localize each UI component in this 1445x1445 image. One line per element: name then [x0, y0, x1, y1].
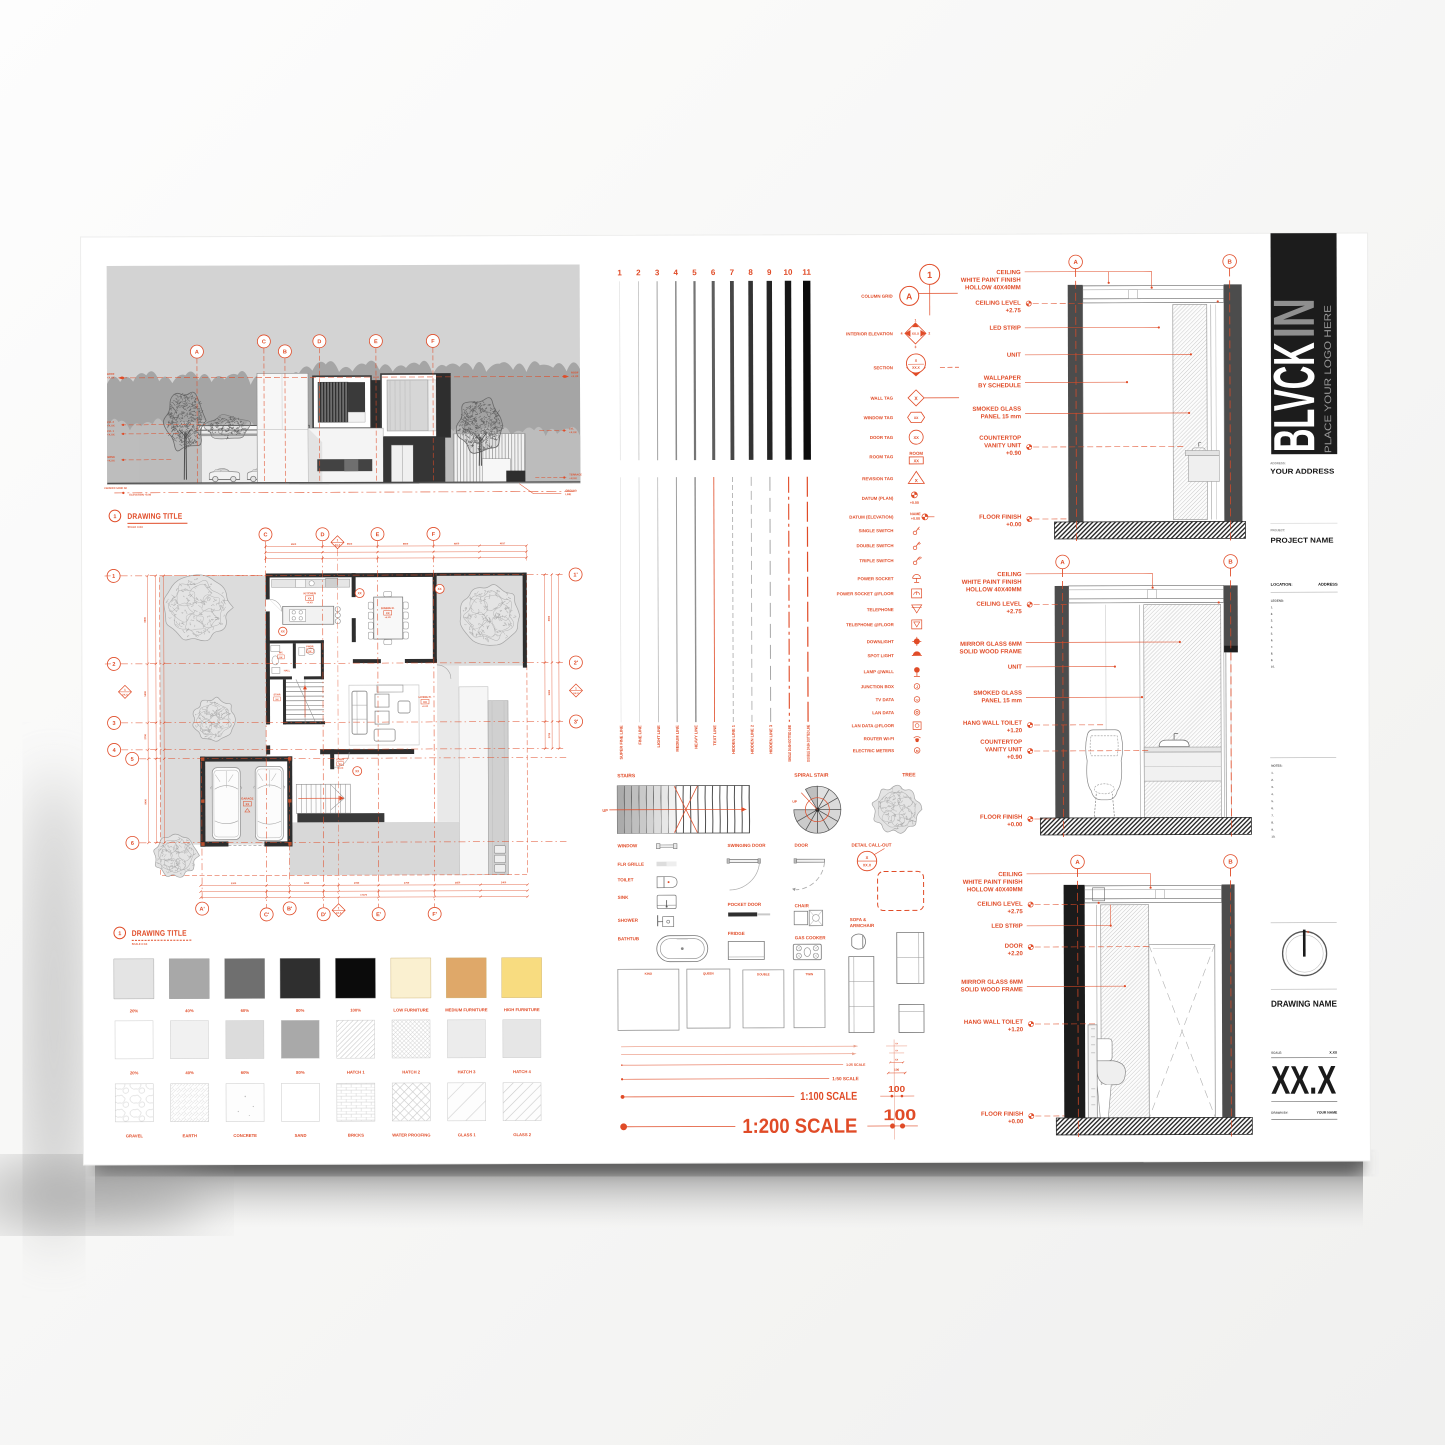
svg-text:4: 4	[901, 332, 903, 336]
svg-text:EARTH: EARTH	[183, 1133, 197, 1138]
svg-text:8: 8	[748, 268, 753, 277]
svg-text:DRAWING NAME: DRAWING NAME	[1271, 999, 1337, 1009]
svg-text:GAS COOKER: GAS COOKER	[795, 935, 827, 940]
svg-text:1: 1	[118, 931, 121, 937]
svg-text:3': 3'	[574, 719, 579, 725]
svg-text:1: 1	[914, 318, 916, 322]
svg-text:VANITY UNIT: VANITY UNIT	[984, 443, 1021, 449]
svg-text:LVL 2: LVL 2	[107, 420, 114, 424]
svg-text:ROOF: ROOF	[107, 372, 115, 376]
svg-text:GLASS 2: GLASS 2	[513, 1132, 532, 1137]
svg-text:2: 2	[928, 332, 930, 336]
svg-text:1250: 1250	[304, 882, 310, 885]
svg-text:REVISION TAG: REVISION TAG	[862, 476, 894, 481]
svg-text:3: 3	[113, 721, 116, 727]
svg-text:1:50 SCALE: 1:50 SCALE	[832, 1076, 859, 1081]
svg-text:BY SCHEDULE: BY SCHEDULE	[978, 383, 1021, 389]
svg-text:XX.X: XX.X	[863, 863, 872, 867]
svg-text:100: 100	[894, 1068, 899, 1072]
svg-text:+1.20: +1.20	[1007, 728, 1023, 734]
svg-text:PWDR: PWDR	[306, 645, 314, 648]
svg-text:XX.X: XX.X	[912, 366, 920, 370]
svg-text:DRAWING TITLE: DRAWING TITLE	[127, 512, 182, 521]
svg-text:C: C	[262, 339, 266, 345]
svg-text:YOUR ADDRESS: YOUR ADDRESS	[1270, 467, 1334, 476]
svg-text:WC: WC	[279, 651, 283, 654]
svg-text:CEILING LEVEL: CEILING LEVEL	[975, 301, 1021, 307]
svg-text:6.: 6.	[1271, 638, 1274, 642]
svg-text:SINK: SINK	[618, 895, 630, 900]
svg-text:D: D	[320, 532, 324, 538]
svg-text:SCALE X:XX: SCALE X:XX	[132, 942, 148, 946]
svg-text:20%: 20%	[130, 1070, 139, 1075]
svg-text:HIDDEN LINE 2: HIDDEN LINE 2	[749, 724, 754, 754]
svg-text:VANITY UNIT: VANITY UNIT	[985, 747, 1022, 753]
svg-text:+2.75: +2.75	[1007, 609, 1023, 615]
svg-text:PROJECT NAME: PROJECT NAME	[1270, 536, 1333, 545]
svg-text:SCALE:: SCALE:	[1271, 1051, 1282, 1055]
svg-text:DOOR: DOOR	[794, 843, 808, 848]
svg-text:11: 11	[802, 268, 811, 277]
svg-text:10.: 10.	[1271, 665, 1275, 669]
svg-text:D': D'	[321, 912, 327, 918]
svg-text:HATCH 3: HATCH 3	[458, 1069, 477, 1074]
svg-text:A: A	[1060, 560, 1065, 566]
svg-text:LEGEND:: LEGEND:	[1271, 599, 1285, 603]
svg-text:100: 100	[883, 1107, 916, 1124]
svg-text:6: 6	[131, 841, 134, 847]
svg-text:+X.XX: +X.XX	[569, 476, 577, 480]
svg-text:SCALE X:XX: SCALE X:XX	[127, 525, 143, 529]
svg-text:DOUBLE: DOUBLE	[757, 972, 770, 976]
svg-text:7.: 7.	[1271, 645, 1274, 649]
svg-text:CHAIR: CHAIR	[795, 903, 810, 908]
svg-text:SOLID WOOD FRAME: SOLID WOOD FRAME	[961, 987, 1023, 993]
svg-text:+X.XX: +X.XX	[107, 376, 115, 380]
svg-text:1: 1	[112, 574, 115, 580]
svg-text:+X.XX: +X.XX	[307, 602, 314, 604]
svg-text:BLVCK: BLVCK	[1262, 342, 1327, 452]
svg-text:CEILING: CEILING	[997, 572, 1022, 578]
svg-text:DATUM (PLAN): DATUM (PLAN)	[862, 496, 894, 501]
svg-text:NAME: NAME	[910, 512, 921, 516]
svg-text:8800: 8800	[548, 615, 551, 621]
svg-text:DOUBLE DASH DOTTED LINE: DOUBLE DASH DOTTED LINE	[806, 725, 811, 762]
svg-text:+0.00: +0.00	[910, 501, 919, 505]
svg-text:UNIT: UNIT	[1008, 665, 1022, 671]
svg-text:LIVING R.: LIVING R.	[419, 695, 432, 699]
svg-text:6: 6	[711, 268, 716, 277]
svg-text:XX: XX	[355, 769, 359, 773]
svg-text:9.: 9.	[1271, 828, 1274, 832]
svg-text:COLUMN GRID: COLUMN GRID	[861, 294, 892, 299]
svg-text:D: D	[317, 339, 321, 345]
svg-text:1.: 1.	[1271, 605, 1274, 609]
svg-text:PANEL 15 mm: PANEL 15 mm	[981, 414, 1021, 420]
svg-text:2.: 2.	[1271, 612, 1274, 616]
svg-text:ROOF: ROOF	[571, 370, 579, 374]
svg-text:B: B	[1227, 260, 1232, 266]
svg-text:+2.75: +2.75	[1007, 909, 1023, 915]
svg-text:3.: 3.	[1271, 785, 1274, 789]
svg-text:HOLLOW 40X40MM: HOLLOW 40X40MM	[965, 285, 1021, 291]
svg-text:BRICKS: BRICKS	[348, 1133, 364, 1138]
svg-text:DOOR: DOOR	[1005, 944, 1024, 950]
svg-text:FLOOR FINISH: FLOOR FINISH	[979, 515, 1021, 521]
svg-text:4: 4	[674, 268, 679, 277]
svg-text:UP: UP	[792, 800, 797, 804]
svg-text:2: 2	[112, 662, 115, 668]
svg-text:40%: 40%	[185, 1008, 194, 1013]
svg-text:XX: XX	[308, 650, 312, 653]
svg-text:KING: KING	[645, 972, 653, 976]
svg-text:XX: XX	[913, 435, 919, 440]
svg-text:HEAVY LINE: HEAVY LINE	[693, 725, 698, 749]
svg-text:ELECTRIC METERS: ELECTRIC METERS	[853, 748, 895, 753]
svg-text:POCKET DOOR: POCKET DOOR	[728, 902, 762, 907]
svg-text:5: 5	[692, 268, 697, 277]
svg-text:QUEEN: QUEEN	[703, 972, 714, 976]
svg-text:WALLPAPER: WALLPAPER	[984, 376, 1022, 382]
svg-text:10: 10	[783, 268, 792, 277]
svg-text:5500: 5500	[347, 543, 353, 546]
svg-text:LOW FURNITURE: LOW FURNITURE	[393, 1007, 428, 1012]
svg-text:E: E	[374, 339, 378, 345]
svg-text:B: B	[1228, 560, 1233, 566]
svg-text:SOLID WOOD FRAME: SOLID WOOD FRAME	[959, 649, 1021, 655]
svg-text:1.: 1.	[1271, 771, 1274, 775]
svg-text:A: A	[1075, 860, 1080, 866]
svg-text:E': E'	[376, 912, 382, 918]
svg-text:HOLLOW 40X40MM: HOLLOW 40X40MM	[967, 887, 1023, 893]
svg-text:TV DATA: TV DATA	[876, 697, 895, 702]
svg-text:8.: 8.	[1271, 820, 1274, 824]
svg-text:LAN DATA: LAN DATA	[872, 710, 895, 715]
svg-text:SOFA &: SOFA &	[850, 917, 867, 922]
svg-text:STAIRS: STAIRS	[617, 773, 636, 779]
svg-text:GLASS 1: GLASS 1	[458, 1132, 477, 1137]
svg-text:WALL TAG: WALL TAG	[871, 396, 894, 401]
svg-text:+0.00: +0.00	[1008, 1119, 1024, 1125]
svg-text:MIRROR GLASS 6MM: MIRROR GLASS 6MM	[961, 980, 1023, 986]
svg-text:INTERIOR ELEVATION: INTERIOR ELEVATION	[846, 331, 893, 336]
svg-text:LAN DATA @FLOOR: LAN DATA @FLOOR	[852, 723, 895, 728]
svg-text:FINE LINE: FINE LINE	[637, 725, 642, 745]
svg-text:9.: 9.	[1271, 658, 1274, 662]
svg-text:3: 3	[655, 268, 660, 277]
svg-text:+0.00: +0.00	[1007, 822, 1023, 828]
svg-text:+0.90: +0.90	[1007, 755, 1023, 761]
svg-text:40%: 40%	[185, 1070, 194, 1075]
svg-text:+0.00: +0.00	[911, 517, 920, 521]
svg-text:LED STRIP: LED STRIP	[989, 326, 1020, 332]
svg-text:JUNCTION BOX: JUNCTION BOX	[861, 684, 894, 689]
svg-text:LVL 1: LVL 1	[107, 429, 114, 433]
svg-text:2650: 2650	[455, 881, 461, 884]
svg-text:A: A	[1073, 260, 1078, 266]
svg-text:+X.XX: +X.XX	[385, 617, 392, 619]
svg-text:WINDOW TAG: WINDOW TAG	[864, 415, 894, 420]
svg-text:TREE: TREE	[902, 772, 916, 778]
svg-text:HATCH 2: HATCH 2	[402, 1069, 421, 1074]
svg-text:+X.XX: +X.XX	[422, 706, 429, 708]
svg-text:8800: 8800	[144, 616, 147, 622]
svg-text:8.: 8.	[1271, 651, 1274, 655]
svg-text:2': 2'	[574, 660, 579, 666]
svg-text:80%: 80%	[296, 1008, 305, 1013]
svg-text:CEILING LEVEL: CEILING LEVEL	[977, 902, 1023, 908]
svg-text:+2.20: +2.20	[1008, 951, 1024, 957]
svg-text:XX.X: XX.X	[1271, 1059, 1336, 1103]
svg-text:TWIN: TWIN	[806, 972, 814, 976]
svg-text:3300: 3300	[231, 882, 237, 885]
svg-text:SPOT LIGHT: SPOT LIGHT	[867, 653, 894, 658]
svg-text:XX: XX	[245, 802, 249, 806]
svg-text:1:100 SCALE: 1:100 SCALE	[800, 1091, 857, 1103]
svg-text:DOOR TAG: DOOR TAG	[870, 435, 894, 440]
svg-text:B: B	[1228, 860, 1233, 866]
svg-text:CEILING: CEILING	[996, 270, 1021, 276]
svg-text:5.: 5.	[1271, 799, 1274, 803]
svg-text:WHITE PAINT FINISH: WHITE PAINT FINISH	[961, 278, 1021, 284]
svg-text:A: A	[195, 350, 199, 356]
svg-text:LVL: LVL	[569, 426, 574, 430]
svg-text:SINGLE SWITCH: SINGLE SWITCH	[859, 528, 894, 533]
svg-text:+X.XX: +X.XX	[107, 424, 115, 428]
svg-text:2700: 2700	[144, 733, 147, 739]
svg-text:XX: XX	[914, 458, 920, 463]
svg-text:UP: UP	[602, 808, 608, 813]
svg-text:80%: 80%	[296, 1070, 305, 1075]
svg-text:+X.XX: +X.XX	[569, 430, 577, 434]
svg-text:+2.75: +2.75	[1006, 308, 1022, 314]
svg-text:17375: 17375	[360, 894, 367, 897]
svg-text:1': 1'	[573, 572, 578, 578]
svg-text:DATUM (ELEVATION): DATUM (ELEVATION)	[849, 514, 894, 519]
svg-text:PLACE YOUR LOGO HERE: PLACE YOUR LOGO HERE	[1323, 305, 1334, 453]
svg-text:LOCATION:: LOCATION:	[1271, 582, 1293, 587]
svg-text:FLOOR FINISH: FLOOR FINISH	[980, 815, 1022, 821]
svg-text:LED STRIP: LED STRIP	[991, 924, 1022, 930]
svg-text:XX: XX	[386, 611, 390, 615]
svg-text:LOBBY: LOBBY	[336, 758, 345, 761]
svg-text:2: 2	[636, 268, 641, 277]
svg-text:E: E	[376, 532, 380, 538]
svg-text:HALL: HALL	[284, 669, 291, 672]
svg-text:ADDRESS: ADDRESS	[1318, 582, 1338, 587]
svg-text:5: 5	[131, 757, 134, 763]
svg-text:MEDIUM LINE: MEDIUM LINE	[675, 725, 680, 752]
svg-text:UNIT: UNIT	[1007, 353, 1021, 359]
svg-text:X: X	[866, 855, 869, 860]
svg-text:XX: XX	[914, 416, 919, 420]
svg-text:+X.XX: +X.XX	[107, 459, 115, 463]
svg-text:6.: 6.	[1271, 806, 1274, 810]
svg-text:GRAVEL: GRAVEL	[126, 1133, 144, 1138]
svg-text:+0.90: +0.90	[1006, 451, 1022, 457]
svg-text:WINDOW: WINDOW	[617, 843, 638, 848]
svg-text:GROUND: GROUND	[565, 488, 577, 492]
svg-text:WHITE PAINT FINISH: WHITE PAINT FINISH	[963, 880, 1023, 886]
svg-text:TOILET: TOILET	[618, 877, 634, 882]
svg-text:COUNTERTOP: COUNTERTOP	[979, 436, 1021, 442]
svg-text:J: J	[916, 685, 918, 689]
svg-text:IN: IN	[1262, 298, 1327, 338]
svg-text:COUNTERTOP: COUNTERTOP	[980, 740, 1022, 746]
svg-text:PROJECT:: PROJECT:	[1270, 528, 1285, 532]
svg-text:XX: XX	[308, 596, 312, 600]
svg-text:ROUTER WI-FI: ROUTER WI-FI	[864, 736, 895, 741]
svg-text:MEDIUM FURNITURE: MEDIUM FURNITURE	[445, 1007, 488, 1012]
svg-text:ROOM: ROOM	[909, 451, 923, 456]
svg-text:CONCRETE: CONCRETE	[233, 1133, 257, 1138]
svg-text:2700: 2700	[548, 732, 551, 738]
svg-text:4637: 4637	[500, 542, 506, 545]
svg-text:HIGH FURNITURE: HIGH FURNITURE	[504, 1007, 540, 1012]
svg-text:9: 9	[767, 268, 772, 277]
svg-text:POWER SOCKET: POWER SOCKET	[858, 576, 894, 581]
svg-text:100%: 100%	[350, 1008, 361, 1013]
svg-text:CEILING: CEILING	[998, 872, 1023, 878]
svg-text:SMOKED GLASS: SMOKED GLASS	[972, 407, 1021, 413]
svg-text:WATER PROOFING: WATER PROOFING	[392, 1132, 430, 1137]
svg-text:XX: XX	[275, 698, 279, 701]
svg-text:+0.00: +0.00	[1006, 522, 1022, 528]
svg-text:F': F'	[432, 912, 437, 918]
svg-text:POWER SOCKET @FLOOR: POWER SOCKET @FLOOR	[837, 591, 895, 596]
svg-text:7: 7	[730, 268, 735, 277]
svg-text:X.XX: X.XX	[1329, 1051, 1337, 1055]
svg-text:60%: 60%	[241, 1008, 250, 1013]
svg-text:SWINGING DOOR: SWINGING DOOR	[727, 843, 766, 848]
svg-text:SMOKED GLASS: SMOKED GLASS	[973, 691, 1022, 697]
svg-text:SUPER FINE LINE: SUPER FINE LINE	[619, 725, 624, 760]
svg-text:M: M	[916, 749, 919, 753]
svg-text:DRAWING TITLE: DRAWING TITLE	[132, 929, 187, 938]
svg-text:YOUR NAME: YOUR NAME	[1317, 1111, 1338, 1115]
svg-text:HATCH 4: HATCH 4	[513, 1069, 532, 1074]
svg-text:DETAIL CALL-OUT: DETAIL CALL-OUT	[851, 842, 891, 847]
svg-text:XX.X: XX.X	[573, 692, 579, 695]
svg-text:TERRACE: TERRACE	[569, 472, 582, 476]
svg-text:ROOM TAG: ROOM TAG	[869, 454, 893, 459]
svg-text:SECTION: SECTION	[873, 365, 893, 370]
svg-text:PANEL 15 mm: PANEL 15 mm	[982, 698, 1022, 704]
svg-text:XX: XX	[423, 700, 427, 704]
svg-text:HOLLOW 40X40MM: HOLLOW 40X40MM	[966, 587, 1022, 593]
svg-text:2400: 2400	[501, 881, 507, 884]
svg-text:ARMCHAIR: ARMCHAIR	[850, 923, 875, 928]
svg-text:XX: XX	[279, 656, 283, 659]
svg-text:3500: 3500	[291, 543, 297, 546]
svg-text:HIDDEN LINE 1: HIDDEN LINE 1	[731, 724, 736, 754]
svg-text:FRIDGE: FRIDGE	[728, 931, 745, 936]
svg-text:TV: TV	[915, 698, 919, 702]
svg-text:DINING R.: DINING R.	[381, 606, 395, 610]
svg-text:FLOOR FINISH: FLOOR FINISH	[981, 1112, 1023, 1118]
svg-text:DOUBLE SWITCH: DOUBLE SWITCH	[856, 543, 893, 548]
svg-text:LIGHT LINE: LIGHT LINE	[656, 725, 661, 748]
svg-text:4600: 4600	[454, 542, 460, 545]
svg-text:TEXT LINE: TEXT LINE	[712, 725, 717, 746]
svg-text:1:200 SCALE: 1:200 SCALE	[742, 1115, 857, 1138]
svg-text:MIRROR GLASS 6MM: MIRROR GLASS 6MM	[960, 642, 1022, 648]
svg-text:DRAWN BY:: DRAWN BY:	[1271, 1111, 1288, 1115]
svg-text:XX.X: XX.X	[336, 912, 342, 915]
svg-text:NOTES:: NOTES:	[1271, 764, 1282, 768]
svg-text:5900: 5900	[144, 690, 147, 696]
svg-text:FLR GRILLE: FLR GRILLE	[618, 862, 645, 867]
svg-text:60%: 60%	[241, 1070, 250, 1075]
svg-text:HANG WALL TOILET: HANG WALL TOILET	[964, 1020, 1023, 1026]
svg-text:HANG WALL TOILET: HANG WALL TOILET	[963, 721, 1022, 727]
svg-text:100: 100	[888, 1084, 905, 1094]
svg-text:C': C'	[264, 912, 270, 918]
svg-text:SINGLE DASH-DOTTED LINE: SINGLE DASH-DOTTED LINE	[787, 725, 792, 762]
svg-text:2.: 2.	[1271, 778, 1274, 782]
svg-text:XX.X: XX.X	[912, 332, 920, 336]
svg-text:CEILING LEVEL: CEILING LEVEL	[976, 602, 1022, 608]
svg-text:TELEPHONE: TELEPHONE	[867, 607, 894, 612]
svg-text:LINE: LINE	[565, 492, 571, 496]
svg-text:+1.20: +1.20	[1008, 1027, 1024, 1033]
svg-text:ELEVATION +0.00: ELEVATION +0.00	[129, 493, 151, 497]
svg-text:1: 1	[113, 514, 116, 520]
svg-text:GARAGE: GARAGE	[241, 796, 253, 800]
svg-text:XX: XX	[438, 587, 442, 591]
svg-text:1: 1	[927, 270, 932, 280]
svg-text:TELEPHONE @FLOOR: TELEPHONE @FLOOR	[846, 622, 895, 627]
svg-text:10.: 10.	[1271, 835, 1275, 839]
svg-text:HIDDEN LINE 3: HIDDEN LINE 3	[768, 724, 773, 754]
svg-text:DOWNLIGHT: DOWNLIGHT	[867, 639, 894, 644]
svg-text:C: C	[263, 532, 267, 538]
svg-text:SHOWER: SHOWER	[618, 918, 639, 923]
svg-text:3: 3	[915, 345, 917, 349]
svg-text:20%: 20%	[130, 1008, 139, 1013]
svg-text:5900: 5900	[548, 689, 551, 695]
svg-text:A: A	[906, 291, 912, 301]
svg-text:ADDRESS:: ADDRESS:	[1270, 461, 1286, 465]
svg-text:+X.XX: +X.XX	[107, 433, 115, 437]
svg-text:2050: 2050	[354, 882, 360, 885]
svg-text:1: 1	[617, 268, 622, 277]
svg-text:B: B	[283, 349, 287, 355]
svg-text:LAMP @WALL: LAMP @WALL	[864, 669, 895, 674]
svg-text:KITCHEN: KITCHEN	[303, 591, 315, 595]
svg-text:2750: 2750	[404, 882, 410, 885]
svg-text:XX: XX	[895, 1058, 899, 1061]
svg-text:FINISHED GRND SE: FINISHED GRND SE	[104, 487, 127, 490]
svg-text:3.: 3.	[1271, 618, 1274, 622]
svg-text:HATCH 1: HATCH 1	[347, 1070, 366, 1075]
svg-text:+X.XX: +X.XX	[571, 374, 579, 378]
svg-text:1:25 SCALE: 1:25 SCALE	[846, 1063, 866, 1067]
svg-text:5.: 5.	[1271, 632, 1274, 636]
svg-text:5500: 5500	[403, 543, 409, 546]
svg-text:B': B'	[287, 906, 293, 912]
svg-text:WHITE PAINT FINISH: WHITE PAINT FINISH	[962, 580, 1022, 586]
svg-text:4.: 4.	[1271, 792, 1274, 796]
svg-text:SAND: SAND	[295, 1133, 307, 1138]
svg-text:TRIPLE SWITCH: TRIPLE SWITCH	[859, 558, 893, 563]
svg-text:BATHTUB: BATHTUB	[618, 936, 640, 941]
svg-text:SPIRAL STAIR: SPIRAL STAIR	[794, 773, 829, 779]
svg-text:8400: 8400	[144, 798, 147, 804]
svg-text:XX.X: XX.X	[122, 693, 128, 696]
svg-text:7.: 7.	[1271, 813, 1274, 817]
svg-text:GRND: GRND	[107, 455, 115, 459]
